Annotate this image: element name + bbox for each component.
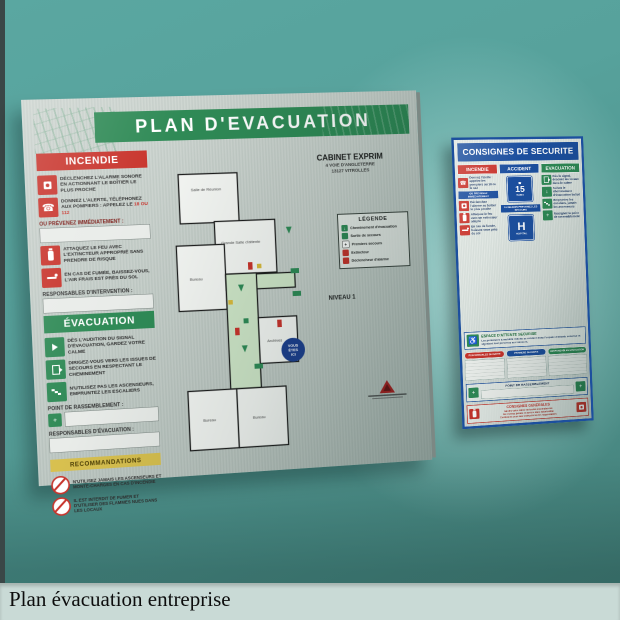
legend-label: Extincteur bbox=[351, 250, 369, 255]
room-label: Salle de Réunion bbox=[191, 186, 222, 192]
legend-box: LÉGENDE ↓ Cheminement d'évacuation Sorti… bbox=[337, 211, 411, 269]
emergency-exit-icon bbox=[541, 175, 551, 185]
assembly-point-icon: + bbox=[48, 413, 62, 427]
first-aid-icon: + bbox=[342, 241, 350, 249]
floor-plan-svg: Salle de Réunion Grande Salle d'attente … bbox=[164, 166, 326, 465]
exit-door-glyph bbox=[544, 176, 549, 182]
c-evac-item-3-text: Empruntez les escaliers, jamais les asce… bbox=[553, 198, 581, 209]
samu-number: 15 bbox=[515, 185, 525, 194]
board-title-text: PLAN D'EVACUATION bbox=[135, 110, 372, 137]
exit-sign-marker bbox=[291, 268, 300, 273]
board-title: PLAN D'EVACUATION bbox=[94, 104, 409, 143]
samu-caption: SAMU bbox=[516, 193, 524, 196]
c-incendie-item-1: ☎ Donnez l'alerte : appelez les pompiers… bbox=[458, 175, 498, 190]
first-aid-marker bbox=[243, 318, 248, 323]
smoke-crawl-icon bbox=[460, 225, 471, 235]
c-evac-item-4-text: Rejoignez le point de rassemblement bbox=[554, 211, 582, 219]
c-evac-item-3: Empruntez les escaliers, jamais les asce… bbox=[542, 198, 581, 209]
photo-left-edge bbox=[0, 0, 5, 583]
espace-attente-text: Les personnes à mobilité réduite se rend… bbox=[481, 334, 583, 346]
exit-sign-marker bbox=[293, 291, 302, 296]
alarm-glyph bbox=[461, 203, 466, 208]
evacuation-item-1-text: Dès l'audition du signal d'évacuation, g… bbox=[67, 334, 155, 356]
caption-bar: Plan évacuation entreprise bbox=[0, 583, 620, 620]
consignes-title: CONSIGNES DE SECURITE bbox=[457, 142, 578, 162]
legend-label: Déclencheur d'alarme bbox=[351, 257, 389, 263]
phone-icon: ☎ bbox=[458, 178, 469, 188]
column-evacuation: EVACUATION Dès le signal, évacuez les lo… bbox=[541, 163, 585, 325]
phone-glyph: ☎ bbox=[42, 201, 55, 214]
legend-label: Premiers secours bbox=[352, 241, 382, 247]
room-label: Bureau bbox=[203, 417, 216, 423]
accident-band: AU BESOIN PREVENEZ LES SECOURS bbox=[501, 204, 540, 212]
assembly-point-icon: + bbox=[468, 387, 478, 398]
c-evac-item-4: + Rejoignez le point de rassemblement bbox=[543, 210, 582, 221]
c-incendie-item-4: En cas de fumée, baissez-vous près du so… bbox=[460, 224, 500, 236]
evacuation-plan-board-face: PLAN D'EVACUATION INCENDIE Déclenchez l'… bbox=[21, 90, 432, 486]
exit-route-icon bbox=[46, 359, 67, 379]
names-field bbox=[507, 356, 547, 378]
evacuation-route-icon: ↓ bbox=[341, 225, 348, 232]
c-evac-item-1-text: Dès le signal, évacuez les locaux dans l… bbox=[552, 174, 580, 185]
evacuation-item-3: N'utilisez pas les ascenseurs, empruntez… bbox=[47, 377, 158, 403]
extinguisher-icon bbox=[40, 245, 61, 265]
evacuation-plan-board: PLAN D'EVACUATION INCENDIE Déclenchez l'… bbox=[21, 90, 432, 486]
assembly-point-icon: + bbox=[576, 381, 586, 391]
level-label: NIVEAU 1 bbox=[310, 292, 373, 302]
consignes-generales-band: CONSIGNES GENERALES Gardez votre calme e… bbox=[467, 398, 589, 424]
legend-label: Cheminement d'évacuation bbox=[350, 224, 397, 230]
stairs-glyph bbox=[52, 389, 55, 391]
c-incendie-item-2-text: Déclenchez l'alarme au boîtier le plus p… bbox=[470, 200, 499, 211]
column-accident: ACCIDENT ☎ 15 SAMU AU BESOIN PREVENEZ LE… bbox=[499, 164, 544, 328]
incendie-item-4: En cas de fumée, baissez-vous, l'air fra… bbox=[41, 264, 152, 288]
you-are-here-text: ICI bbox=[291, 353, 296, 357]
extinguisher-glyph bbox=[47, 251, 53, 261]
alarm-button-icon bbox=[459, 201, 470, 211]
stairs-icon bbox=[542, 198, 552, 208]
names-field bbox=[548, 354, 587, 376]
column-evacuation-header: EVACUATION bbox=[541, 163, 580, 173]
recommandation-item-2-text: Il est interdit de fumer et d'utiliser d… bbox=[74, 492, 163, 513]
consignes-columns: INCENDIE ☎ Donnez l'alerte : appelez les… bbox=[457, 163, 585, 329]
extinguisher-icon bbox=[342, 250, 349, 257]
incendie-item-2-text: Donnez l'alerte, téléphonez aux pompiers… bbox=[61, 195, 150, 215]
exit-sign-marker bbox=[254, 363, 263, 368]
room-label: Archives bbox=[267, 337, 282, 343]
column-incendie-header: INCENDIE bbox=[457, 164, 497, 174]
walking-person-icon: ↓ bbox=[542, 187, 552, 197]
alert-text: Donnez l'alerte, téléphonez aux pompiers… bbox=[61, 196, 142, 210]
stairs-glyph bbox=[544, 202, 546, 203]
alarm-button-icon bbox=[37, 175, 58, 195]
c-evac-item-1: Dès le signal, évacuez les locaux dans l… bbox=[541, 174, 580, 185]
incendie-item-2: ☎ Donnez l'alerte, téléphonez aux pompie… bbox=[38, 194, 149, 217]
alarm-marker bbox=[257, 264, 262, 269]
extinguisher-icon bbox=[469, 409, 479, 420]
you-are-here-text: ÊTES bbox=[288, 347, 298, 352]
pill-column: RESPONSABLES EVACUATION bbox=[548, 346, 587, 376]
alarm-button-icon bbox=[576, 402, 586, 412]
safety-instructions-board-face: CONSIGNES DE SECURITE INCENDIE ☎ Donnez … bbox=[451, 136, 594, 429]
smoke-crawl-icon bbox=[41, 268, 62, 288]
signal-icon bbox=[44, 337, 65, 357]
c-evac-item-2-text: Suivez le cheminement d'évacuation balis… bbox=[553, 186, 581, 197]
c-incendie-item-4-text: En cas de fumée, baissez-vous près du so… bbox=[471, 224, 500, 235]
maker-logo bbox=[365, 379, 410, 401]
safety-instructions-board: CONSIGNES DE SECURITE INCENDIE ☎ Donnez … bbox=[451, 136, 594, 429]
pill-column: RESPONSABLES SECURITE bbox=[465, 351, 506, 381]
legend-title: LÉGENDE bbox=[341, 215, 405, 223]
assembly-point-icon: + bbox=[543, 210, 553, 220]
recommandations-header: RECOMMANDATIONS bbox=[50, 453, 161, 472]
photo-stage: PLAN D'EVACUATION INCENDIE Déclenchez l'… bbox=[0, 0, 620, 620]
alarm-glyph bbox=[43, 181, 51, 189]
hospital-sign: H HOPITAL bbox=[508, 215, 534, 241]
responsables-pills: RESPONSABLES SECURITE PREMIERS SECOURS R… bbox=[465, 346, 588, 380]
legend-row: Déclencheur d'alarme bbox=[343, 255, 407, 264]
maker-logo-text-bar bbox=[372, 396, 403, 399]
extinguisher-icon bbox=[459, 213, 470, 223]
room-label: Bureau bbox=[190, 276, 203, 282]
consignes-generales-text-block: CONSIGNES GENERALES Gardez votre calme e… bbox=[481, 401, 574, 421]
room-label: Bureau bbox=[253, 414, 266, 420]
espace-attente-text-block: ESPACE D'ATTENTE SECURISE Les personnes … bbox=[481, 329, 583, 345]
corridor-main bbox=[226, 273, 262, 389]
prevenez-field bbox=[39, 224, 150, 243]
c-incendie-item-1-text: Donnez l'alerte : appelez les pompiers a… bbox=[469, 175, 498, 189]
incendie-header: INCENDIE bbox=[36, 150, 147, 171]
pill-column: PREMIERS SECOURS bbox=[507, 348, 547, 378]
c-evac-item-2: ↓ Suivez le cheminement d'évacuation bal… bbox=[542, 186, 581, 197]
extinguisher-marker bbox=[248, 262, 253, 270]
legend-label: Sortie de secours bbox=[350, 232, 380, 238]
room-salle-reunion bbox=[178, 173, 239, 224]
alarm-marker bbox=[228, 300, 233, 305]
emergency-exit-icon bbox=[342, 233, 349, 240]
incendie-item-3-text: Attaquez le feu avec l'extincteur approp… bbox=[63, 243, 152, 264]
c-incendie-item-3: Attaquez le feu avec un extincteur adapt… bbox=[459, 212, 499, 223]
incendie-band: OU PREVENEZ IMMEDIATEMENT bbox=[458, 191, 498, 199]
no-elevator-icon bbox=[51, 475, 70, 495]
exit-door-glyph bbox=[52, 365, 60, 375]
names-field bbox=[465, 358, 505, 380]
c-incendie-item-2: Déclenchez l'alarme au boîtier le plus p… bbox=[459, 200, 499, 211]
c-incendie-item-3-text: Attaquez le feu avec un extincteur adapt… bbox=[471, 212, 500, 223]
incendie-item-4-text: En cas de fumée, baissez-vous, l'air fra… bbox=[64, 268, 152, 283]
stairs-icon bbox=[47, 382, 68, 402]
hospital-caption: HOPITAL bbox=[516, 232, 528, 235]
espace-attente-band: ♿ ESPACE D'ATTENTE SECURISE Les personne… bbox=[464, 326, 586, 349]
alarm-trigger-icon bbox=[343, 257, 350, 264]
column-accident-header: ACCIDENT bbox=[499, 164, 538, 174]
extinguisher-marker bbox=[277, 320, 282, 328]
no-smoking-icon bbox=[52, 497, 71, 517]
phone-icon: ☎ bbox=[38, 198, 59, 218]
incendie-item-1-text: Déclenchez l'alarme sonore en actionnant… bbox=[60, 173, 149, 193]
caption-text: Plan évacuation entreprise bbox=[0, 583, 620, 612]
samu-sign: ☎ 15 SAMU bbox=[507, 176, 533, 202]
evacuation-item-1: Dès l'audition du signal d'évacuation, g… bbox=[44, 332, 155, 357]
floor-plan: Salle de Réunion Grande Salle d'attente … bbox=[164, 166, 326, 465]
crawl-glyph bbox=[462, 230, 468, 232]
alarm-glyph bbox=[579, 405, 584, 410]
evacuation-item-3-text: N'utilisez pas les ascenseurs, empruntez… bbox=[69, 381, 157, 397]
wheelchair-icon: ♿ bbox=[467, 334, 480, 347]
crawl-glyph bbox=[47, 277, 57, 279]
incendie-item-3: Attaquez le feu avec l'extincteur approp… bbox=[40, 242, 151, 266]
recommandation-item-1-text: N'utilisez jamais les ascenseurs et mont… bbox=[73, 473, 162, 489]
consignes-generales-title: CONSIGNES GENERALES bbox=[481, 401, 574, 411]
evacuation-item-2: Dirigez-vous vers les issues de secours … bbox=[46, 355, 157, 380]
column-incendie: INCENDIE ☎ Donnez l'alerte : appelez les… bbox=[457, 164, 503, 329]
hospital-letter: H bbox=[517, 220, 526, 232]
signal-glyph bbox=[52, 344, 58, 351]
extinguisher-marker bbox=[235, 328, 240, 336]
rassemblement-center: POINT DE RASSEMBLEMENT bbox=[481, 380, 574, 399]
maker-logo-triangle-icon bbox=[379, 380, 395, 394]
instructions-column: INCENDIE Déclenchez l'alarme sonore en a… bbox=[36, 149, 163, 517]
extinguisher-glyph bbox=[472, 411, 476, 418]
extinguisher-glyph bbox=[462, 215, 466, 222]
incendie-item-1: Déclenchez l'alarme sonore en actionnant… bbox=[37, 172, 148, 195]
evacuation-item-2-text: Dirigez-vous vers les issues de secours … bbox=[68, 356, 156, 378]
evacuation-arrow-icon bbox=[286, 227, 292, 234]
evacuation-header: ÉVACUATION bbox=[43, 311, 154, 334]
company-block: CABINET EXPRIM 4 VOIE D'ANGLETERRE 13127… bbox=[300, 152, 399, 176]
